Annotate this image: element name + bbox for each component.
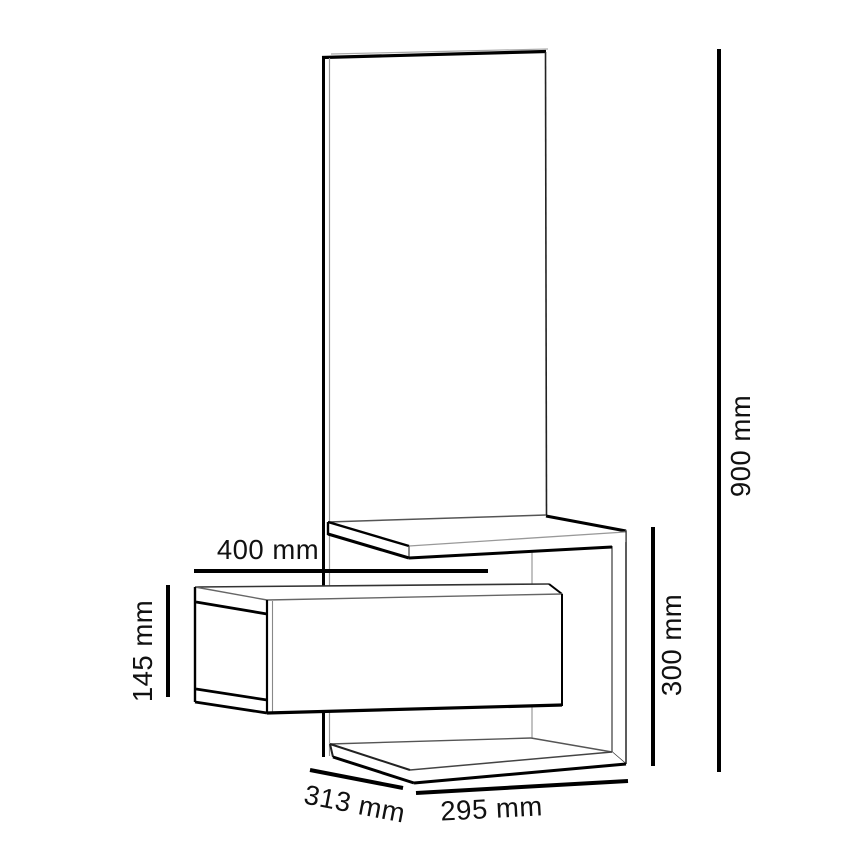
dimension-label-total-height: 900 mm xyxy=(725,395,756,497)
technical-drawing-canvas: 400 mm 145 mm 900 mm 300 mm 313 mm 295 m… xyxy=(0,0,868,868)
dimension-label-drawer-height: 145 mm xyxy=(127,600,158,702)
dimension-label-base-width: 295 mm xyxy=(440,790,544,826)
dimension-label-frame-height: 300 mm xyxy=(656,594,687,696)
dimension-label-shelf-width: 400 mm xyxy=(217,534,319,565)
panel-right-edge xyxy=(546,52,547,519)
furniture-dimension-diagram: 400 mm 145 mm 900 mm 300 mm 313 mm 295 m… xyxy=(0,0,868,868)
drawer xyxy=(195,584,562,713)
